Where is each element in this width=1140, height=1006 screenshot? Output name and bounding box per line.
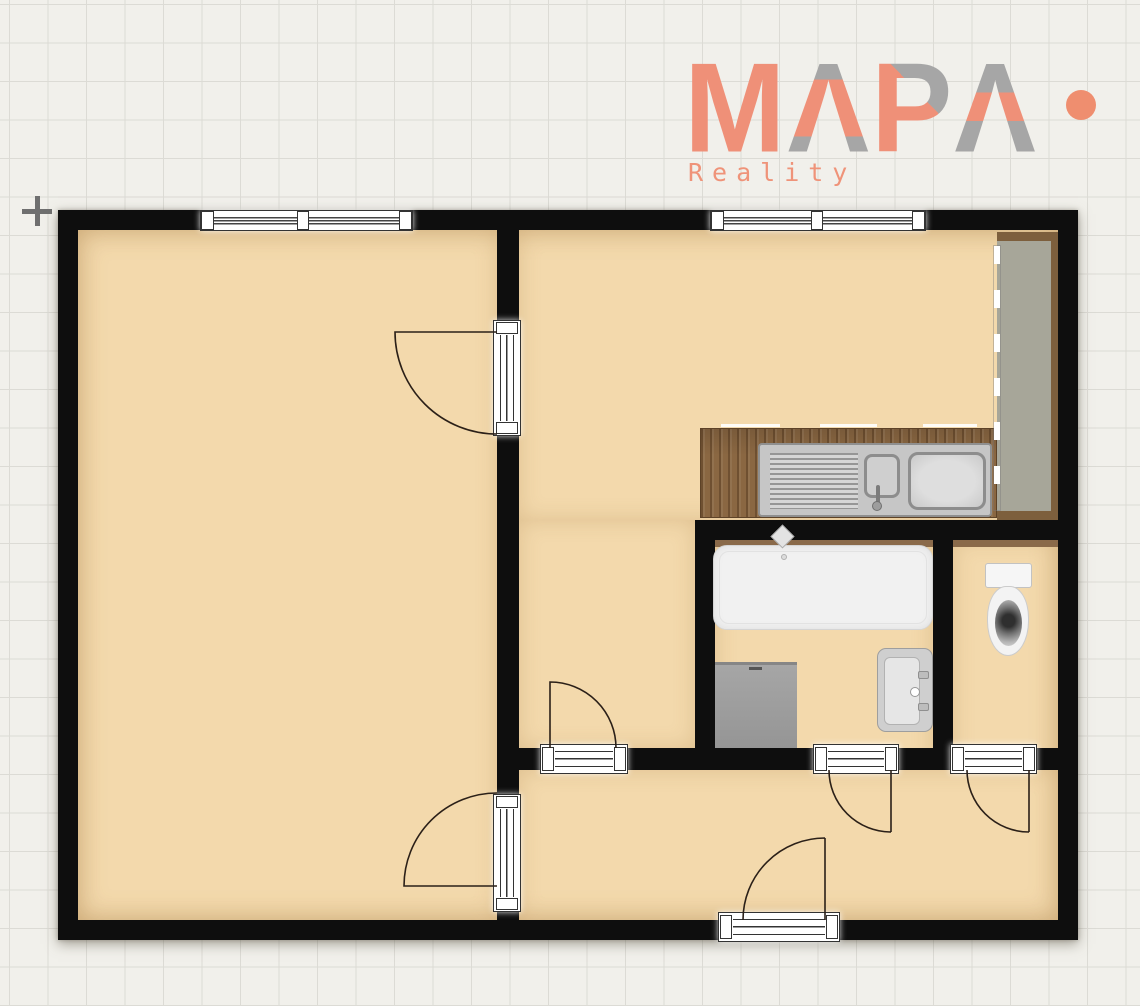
toilet-bowl (987, 586, 1029, 656)
bathtub (713, 545, 933, 630)
basin-tap-icon (918, 671, 929, 679)
sink-faucet-knob (872, 501, 882, 511)
floor-plan (58, 210, 1078, 940)
wc-door-frame (950, 744, 1037, 774)
bathroom-wc-divider-wall (933, 540, 953, 770)
wc-ledge (953, 540, 1058, 547)
tall-cabinet (997, 232, 1058, 520)
upper-cabinet-tick (820, 424, 877, 427)
door-frame-cap (496, 898, 518, 910)
room-hallway (519, 770, 1058, 920)
window-cap (399, 211, 412, 230)
sink-basin-small (864, 454, 900, 498)
living-room-lower-door-frame (493, 794, 521, 912)
toilet-tank (985, 563, 1032, 588)
upper-cabinet-tick (923, 424, 977, 427)
logo-subtitle: Reality (688, 158, 856, 187)
logo-dot-icon (1066, 90, 1096, 120)
washing-machine-control (749, 667, 762, 670)
door-frame-lines (500, 335, 514, 421)
upper-cabinet-tick (721, 424, 780, 427)
bathtub-faucet-drop (781, 554, 787, 560)
logo-letter-p: P (871, 44, 954, 173)
door-frame-lines (733, 919, 825, 935)
door-frame-lines (965, 751, 1022, 767)
bathroom-left-wall (695, 520, 715, 770)
logo-wordmark: M Λ P Λ (684, 46, 1104, 170)
sink-drainboard (770, 453, 858, 509)
tall-cabinet-face (997, 241, 1051, 511)
window-mullion (297, 211, 309, 230)
logo-letter-a2: Λ (954, 44, 1037, 173)
bathtub-inner (719, 551, 927, 624)
window-cap (711, 211, 724, 230)
basin-tap-icon (918, 703, 929, 711)
door-frame-cap (720, 915, 732, 939)
sink-basin-large (908, 452, 986, 510)
window-mullion (811, 211, 823, 230)
entry-door-frame (718, 912, 840, 942)
door-frame-cap (1023, 747, 1035, 771)
door-frame-lines (555, 751, 613, 767)
kitchen-sink (758, 443, 992, 517)
window-cap (912, 211, 925, 230)
door-frame-lines (828, 751, 884, 767)
door-frame-cap (496, 422, 518, 434)
logo-letter-m: M (684, 44, 788, 173)
crosshair-v-bar (35, 196, 40, 226)
door-frame-cap (885, 747, 897, 771)
room-kitchen-arm (519, 520, 695, 748)
door-frame-lines (500, 809, 514, 897)
door-frame-cap (496, 322, 518, 334)
room-living (78, 230, 497, 920)
basin-knob-icon (910, 687, 920, 697)
kitchen-hall-door-frame (540, 744, 628, 774)
bathroom-door-frame (813, 744, 899, 774)
living-room-window (200, 210, 413, 231)
washing-machine (715, 662, 797, 748)
toilet-bowl-inner (995, 600, 1022, 646)
door-frame-cap (826, 915, 838, 939)
cabinet-handles (994, 246, 1000, 510)
door-frame-cap (614, 747, 626, 771)
kitchen-window (710, 210, 926, 231)
wash-basin (877, 648, 933, 732)
door-frame-cap (542, 747, 554, 771)
logo-letter-a1: Λ (788, 44, 871, 173)
door-frame-cap (496, 796, 518, 808)
crosshair-icon (22, 196, 52, 226)
door-frame-cap (815, 747, 827, 771)
page: { "logo": { "brand": "MAPA", "letters": … (0, 0, 1140, 1006)
living-room-upper-door-frame (493, 320, 521, 436)
door-frame-cap (952, 747, 964, 771)
bathroom-top-wall (695, 520, 1058, 540)
window-cap (201, 211, 214, 230)
mapa-logo: M Λ P Λ Reality (684, 46, 1104, 170)
